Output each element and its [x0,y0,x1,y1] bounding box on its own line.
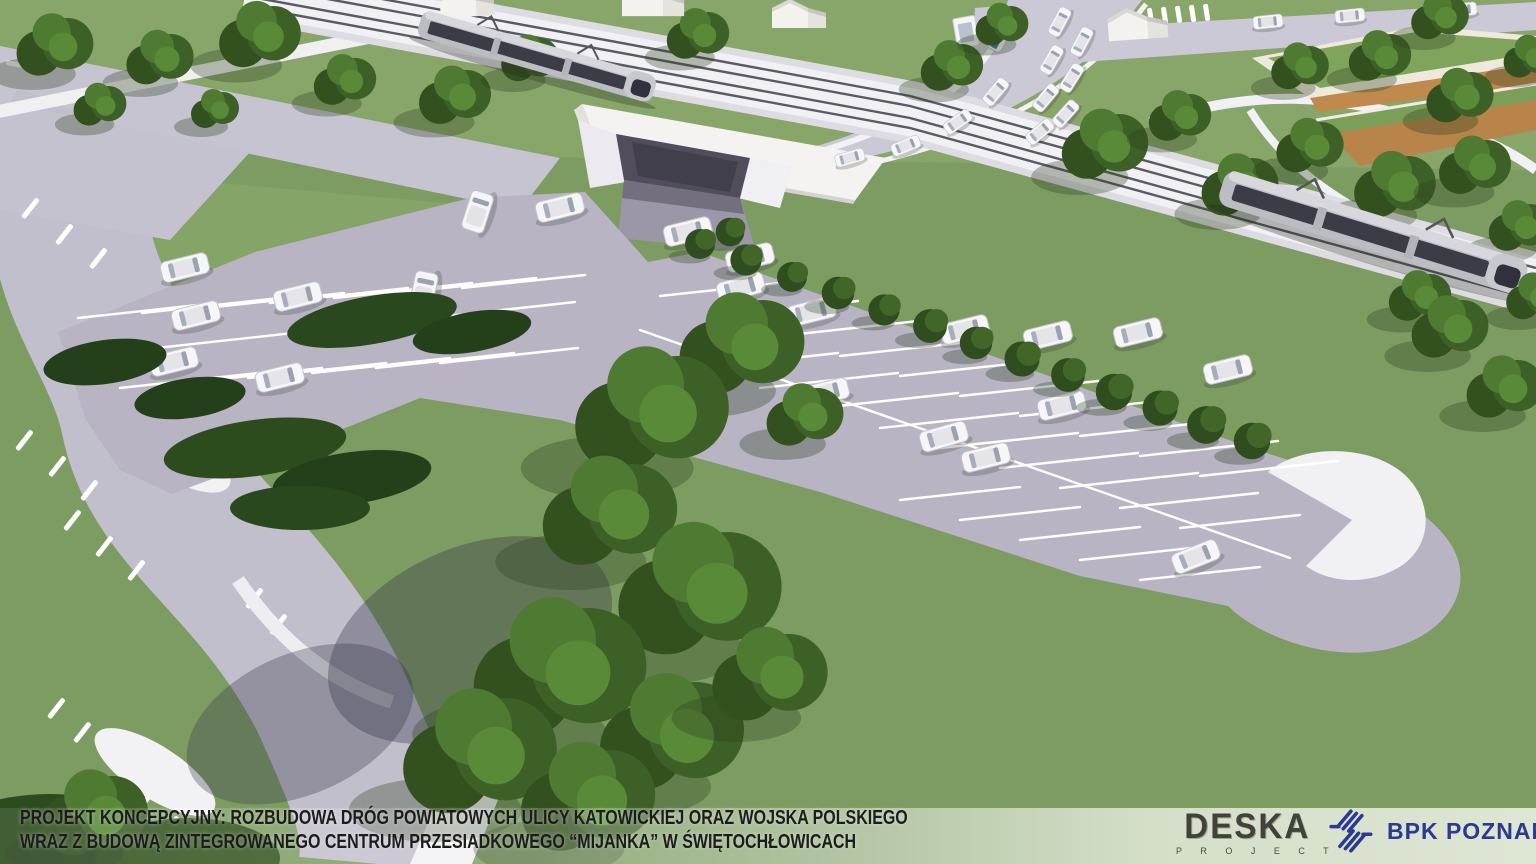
deska-logo-subtitle: P R O J E C T [1176,846,1326,856]
deska-logo-text: DESKA [1176,810,1319,844]
bpk-logo: BPK POZNAŃ [1326,806,1536,856]
concept-render-page: PROJEKT KONCEPCYJNY: ROZBUDOWA DRÓG POWI… [0,0,1536,864]
caption-line-1: PROJEKT KONCEPCYJNY: ROZBUDOWA DRÓG POWI… [20,806,908,830]
scene-render [0,0,1536,864]
project-caption: PROJEKT KONCEPCYJNY: ROZBUDOWA DRÓG POWI… [20,806,908,854]
deska-logo: DESKA P R O J E C T [1176,810,1326,856]
bpk-logo-icon [1326,809,1378,853]
caption-line-2: WRAZ Z BUDOWĄ ZINTEGROWANEGO CENTRUM PRZ… [20,830,908,854]
bpk-logo-text: BPK POZNAŃ [1387,818,1536,845]
